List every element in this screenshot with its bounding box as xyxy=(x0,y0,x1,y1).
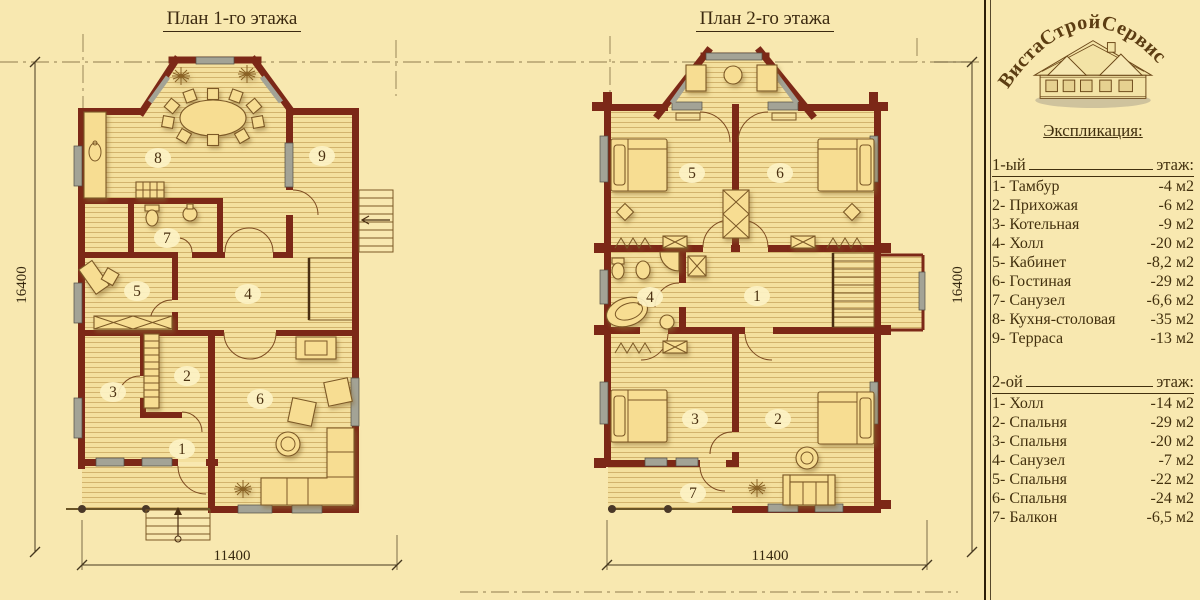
brand-logo: ВистаСтройСервис xyxy=(992,0,1194,114)
legend-row: 7- Санузел-6,6 м2 xyxy=(992,291,1194,310)
legend-panel: ВистаСтройСервис Экспликация: 1-ый этаж:… xyxy=(992,0,1194,600)
legend-row: 3- Спальня-20 м2 xyxy=(992,432,1194,451)
room-label: 6 xyxy=(767,163,793,183)
svg-text:5: 5 xyxy=(688,165,696,182)
legend-separator xyxy=(985,0,991,600)
svg-text:8: 8 xyxy=(154,150,162,167)
legend-row: 1- Холл-14 м2 xyxy=(992,394,1194,413)
legend-row: 5- Спальня-22 м2 xyxy=(992,470,1194,489)
house-sketch xyxy=(1034,41,1151,108)
room-label: 4 xyxy=(235,284,261,304)
svg-text:9: 9 xyxy=(318,148,326,165)
svg-text:5: 5 xyxy=(133,283,141,300)
room-label: 2 xyxy=(765,409,791,429)
legend-heading: Экспликация: xyxy=(992,121,1194,141)
room-label: 2 xyxy=(174,366,200,386)
leader-line xyxy=(1026,386,1153,387)
floor1-suffix: этаж: xyxy=(1156,155,1194,175)
svg-text:3: 3 xyxy=(691,411,699,428)
floor2-items: 1- Холл-14 м2 2- Спальня-29 м2 3- Спальн… xyxy=(992,394,1194,527)
legend-row: 5- Кабинет-8,2 м2 xyxy=(992,253,1194,272)
floor1-label: 1-ый xyxy=(992,155,1026,175)
blueprint-sheet: 1 2 3 4 5 6 7 8 9 16400 11400 xyxy=(0,0,1200,600)
legend-row: 4- Холл-20 м2 xyxy=(992,234,1194,253)
floor1-header: 1-ый этаж: xyxy=(992,155,1194,177)
room-label: 7 xyxy=(154,228,180,248)
legend-row: 8- Кухня-столовая-35 м2 xyxy=(992,310,1194,329)
room-label: 8 xyxy=(145,148,171,168)
legend-row: 1- Тамбур-4 м2 xyxy=(992,177,1194,196)
room-label: 3 xyxy=(100,382,126,402)
floor2-suffix: этаж: xyxy=(1156,372,1194,392)
legend-row: 2- Спальня-29 м2 xyxy=(992,413,1194,432)
legend-row: 7- Балкон-6,5 м2 xyxy=(992,508,1194,527)
legend-row: 2- Прихожая-6 м2 xyxy=(992,196,1194,215)
svg-text:3: 3 xyxy=(109,384,117,401)
floor2-label: 2-ой xyxy=(992,372,1023,392)
floor-plan-2: 1 2 3 4 5 6 7 16400 11400 xyxy=(592,51,977,570)
legend-row: 4- Санузел-7 м2 xyxy=(992,451,1194,470)
svg-text:6: 6 xyxy=(256,391,264,408)
room-label: 6 xyxy=(247,389,273,409)
legend-row: 6- Спальня-24 м2 xyxy=(992,489,1194,508)
legend-row: 3- Котельная-9 м2 xyxy=(992,215,1194,234)
svg-text:2: 2 xyxy=(183,368,191,385)
svg-text:2: 2 xyxy=(774,411,782,428)
room-label: 9 xyxy=(309,146,335,166)
room-label: 5 xyxy=(679,163,705,183)
floor1-items: 1- Тамбур-4 м2 2- Прихожая-6 м2 3- Котел… xyxy=(992,177,1194,348)
svg-text:4: 4 xyxy=(646,289,654,306)
svg-text:1: 1 xyxy=(178,441,186,458)
room-label: 7 xyxy=(680,483,706,503)
room-label: 5 xyxy=(124,281,150,301)
leader-line xyxy=(1029,169,1154,170)
plan2-title: План 2-го этажа xyxy=(665,8,865,30)
dim-width-2: 11400 xyxy=(752,548,789,564)
dim-height-1: 16400 xyxy=(14,266,30,304)
room-label: 3 xyxy=(682,409,708,429)
svg-text:1: 1 xyxy=(753,288,761,305)
room-label: 1 xyxy=(744,286,770,306)
svg-text:6: 6 xyxy=(776,165,784,182)
floor2-header: 2-ой этаж: xyxy=(992,372,1194,394)
legend-row: 6- Гостиная-29 м2 xyxy=(992,272,1194,291)
floor-plan-1: 1 2 3 4 5 6 7 8 9 16400 11400 xyxy=(14,57,402,570)
room-label: 4 xyxy=(637,287,663,307)
svg-text:4: 4 xyxy=(244,286,252,303)
legend-row: 9- Терраса-13 м2 xyxy=(992,329,1194,348)
svg-text:7: 7 xyxy=(163,230,171,247)
room-label: 1 xyxy=(169,439,195,459)
svg-text:7: 7 xyxy=(689,485,697,502)
plan1-title: План 1-го этажа xyxy=(132,8,332,30)
dim-width-1: 11400 xyxy=(214,548,251,564)
dim-height-2: 16400 xyxy=(950,266,966,304)
